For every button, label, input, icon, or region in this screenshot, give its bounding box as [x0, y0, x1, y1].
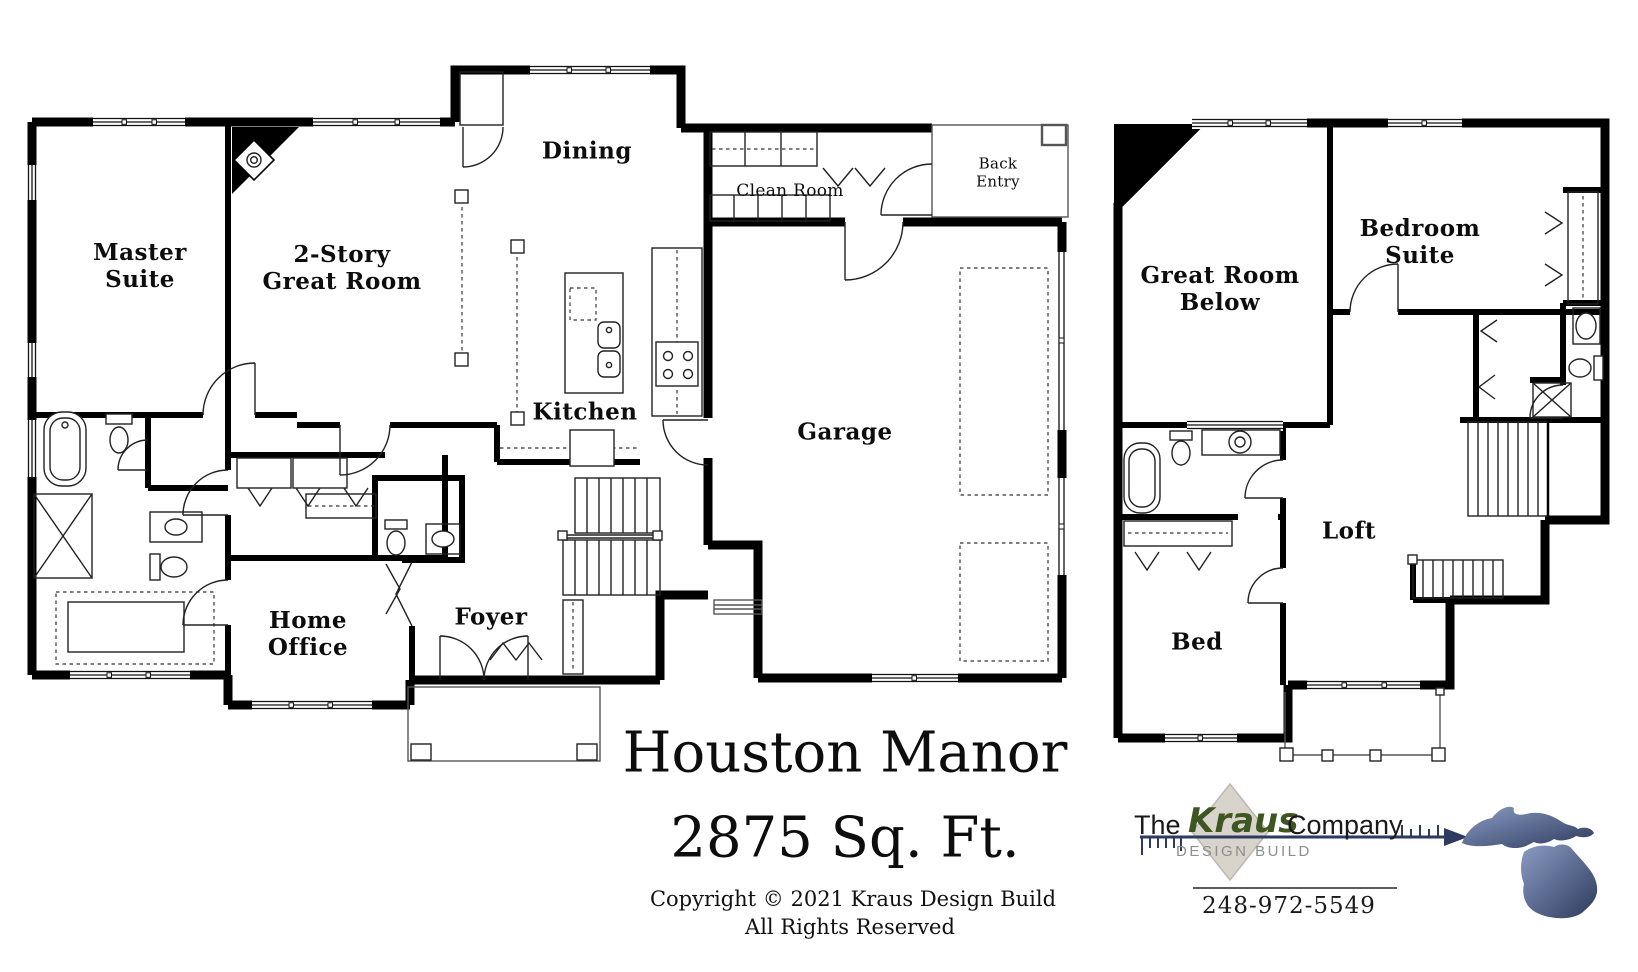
garage-bay-outline [960, 268, 1048, 495]
vanity-sink [150, 512, 202, 542]
powder-room-fixtures [385, 520, 460, 555]
room-label-bedroom-suite: Bedroom Suite [1360, 215, 1481, 269]
walk-in-closet [56, 592, 214, 664]
room-label-clean-room: Clean Room [736, 181, 843, 201]
room-label-back-entry: Back Entry [976, 155, 1020, 190]
logo-tagline: DESIGN BUILD [1176, 843, 1312, 860]
deck [1280, 688, 1445, 761]
fireplace [232, 127, 299, 194]
bathtub-fixture [44, 412, 86, 486]
range-fixture [656, 342, 698, 386]
garage-bay-outline [960, 543, 1048, 661]
room-label-garage: Garage [797, 418, 892, 445]
room-label-foyer: Foyer [454, 603, 527, 630]
kitchen-island [565, 273, 623, 393]
room-label-home-office: Home Office [268, 607, 348, 661]
room-label-dining: Dining [542, 137, 632, 164]
copyright-text: Copyright © 2021 Kraus Design Build [650, 887, 1056, 911]
toilet-fixture [1170, 431, 1192, 465]
room-label-loft: Loft [1322, 517, 1376, 544]
plan-square-footage: 2875 Sq. Ft. [670, 806, 1019, 871]
staircase [558, 478, 662, 595]
room-label-great-room: 2-Story Great Room [262, 241, 421, 295]
room-label-kitchen: Kitchen [533, 398, 638, 425]
hall-closets [237, 458, 376, 518]
toilet-fixture [150, 554, 187, 580]
logo-brand: Kraus [1188, 801, 1299, 841]
room-label-bed: Bed [1171, 628, 1223, 655]
floor-plan-sheet: Master Suite 2-Story Great Room Dining C… [0, 0, 1638, 972]
second-floor-plan [1114, 117, 1605, 761]
bathtub-fixture [1124, 443, 1160, 513]
foyer-closet [563, 600, 583, 674]
refrigerator [570, 430, 614, 466]
bedroom-closet [1568, 192, 1598, 304]
garage-doors [960, 252, 1068, 661]
shower-fixture [34, 494, 92, 578]
logo-suffix: Company [1287, 810, 1403, 841]
columns [455, 190, 524, 425]
clean-room-cubbies [710, 132, 830, 221]
exterior-walls [32, 70, 1062, 705]
plan-title: Houston Manor [623, 721, 1068, 786]
door-swings-first-floor [118, 127, 932, 680]
front-porch [408, 687, 600, 761]
michigan-state-icon [1462, 807, 1597, 919]
room-label-great-room-below: Great Room Below [1140, 262, 1299, 316]
staircase [1408, 422, 1548, 598]
shower-fixture [1533, 383, 1571, 417]
bed-closet [1124, 521, 1232, 546]
rights-text: All Rights Reserved [745, 915, 955, 939]
logo-phone: 248-972-5549 [1202, 893, 1376, 919]
room-label-master-suite: Master Suite [93, 239, 187, 293]
vanity-sink [1202, 430, 1280, 455]
logo-prefix: The [1134, 810, 1181, 841]
pantry [460, 72, 503, 125]
toilet-fixture [1569, 356, 1603, 380]
